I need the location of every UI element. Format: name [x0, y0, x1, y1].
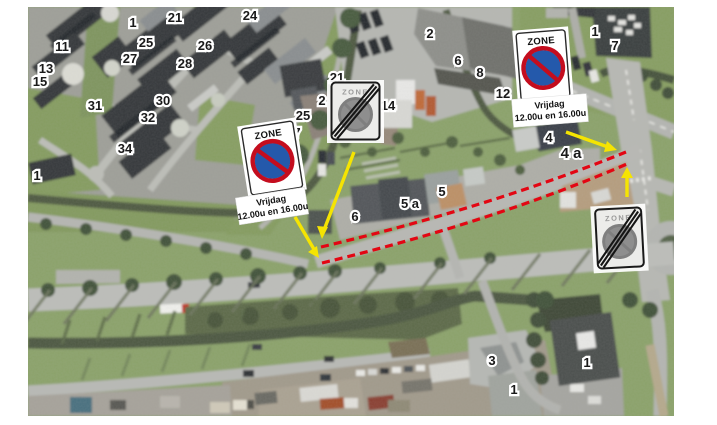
svg-text:1: 1 [583, 355, 590, 370]
svg-text:30: 30 [156, 93, 170, 108]
svg-text:21: 21 [168, 10, 182, 25]
svg-text:5: 5 [438, 184, 445, 199]
svg-text:1: 1 [591, 24, 598, 39]
svg-text:1: 1 [129, 15, 136, 30]
svg-text:31: 31 [88, 98, 102, 113]
svg-text:25: 25 [139, 35, 153, 50]
svg-text:32: 32 [141, 110, 155, 125]
svg-text:2: 2 [318, 93, 325, 108]
svg-text:4: 4 [545, 130, 553, 145]
svg-text:34: 34 [118, 141, 133, 156]
svg-text:11: 11 [55, 39, 69, 54]
svg-text:24: 24 [243, 8, 258, 23]
svg-text:8: 8 [476, 65, 483, 80]
svg-text:12: 12 [496, 86, 510, 101]
svg-text:7: 7 [611, 38, 618, 53]
svg-text:1: 1 [510, 382, 517, 397]
svg-text:3: 3 [488, 353, 495, 368]
svg-text:2: 2 [426, 26, 433, 41]
svg-text:6: 6 [454, 53, 461, 68]
svg-text:26: 26 [198, 38, 212, 53]
svg-text:25: 25 [296, 108, 310, 123]
svg-text:28: 28 [178, 56, 192, 71]
svg-text:27: 27 [123, 51, 137, 66]
svg-text:1: 1 [33, 168, 40, 183]
svg-text:4 a: 4 a [561, 145, 583, 162]
svg-text:5 a: 5 a [401, 196, 420, 211]
svg-text:6: 6 [351, 209, 358, 224]
svg-text:15: 15 [33, 74, 47, 89]
